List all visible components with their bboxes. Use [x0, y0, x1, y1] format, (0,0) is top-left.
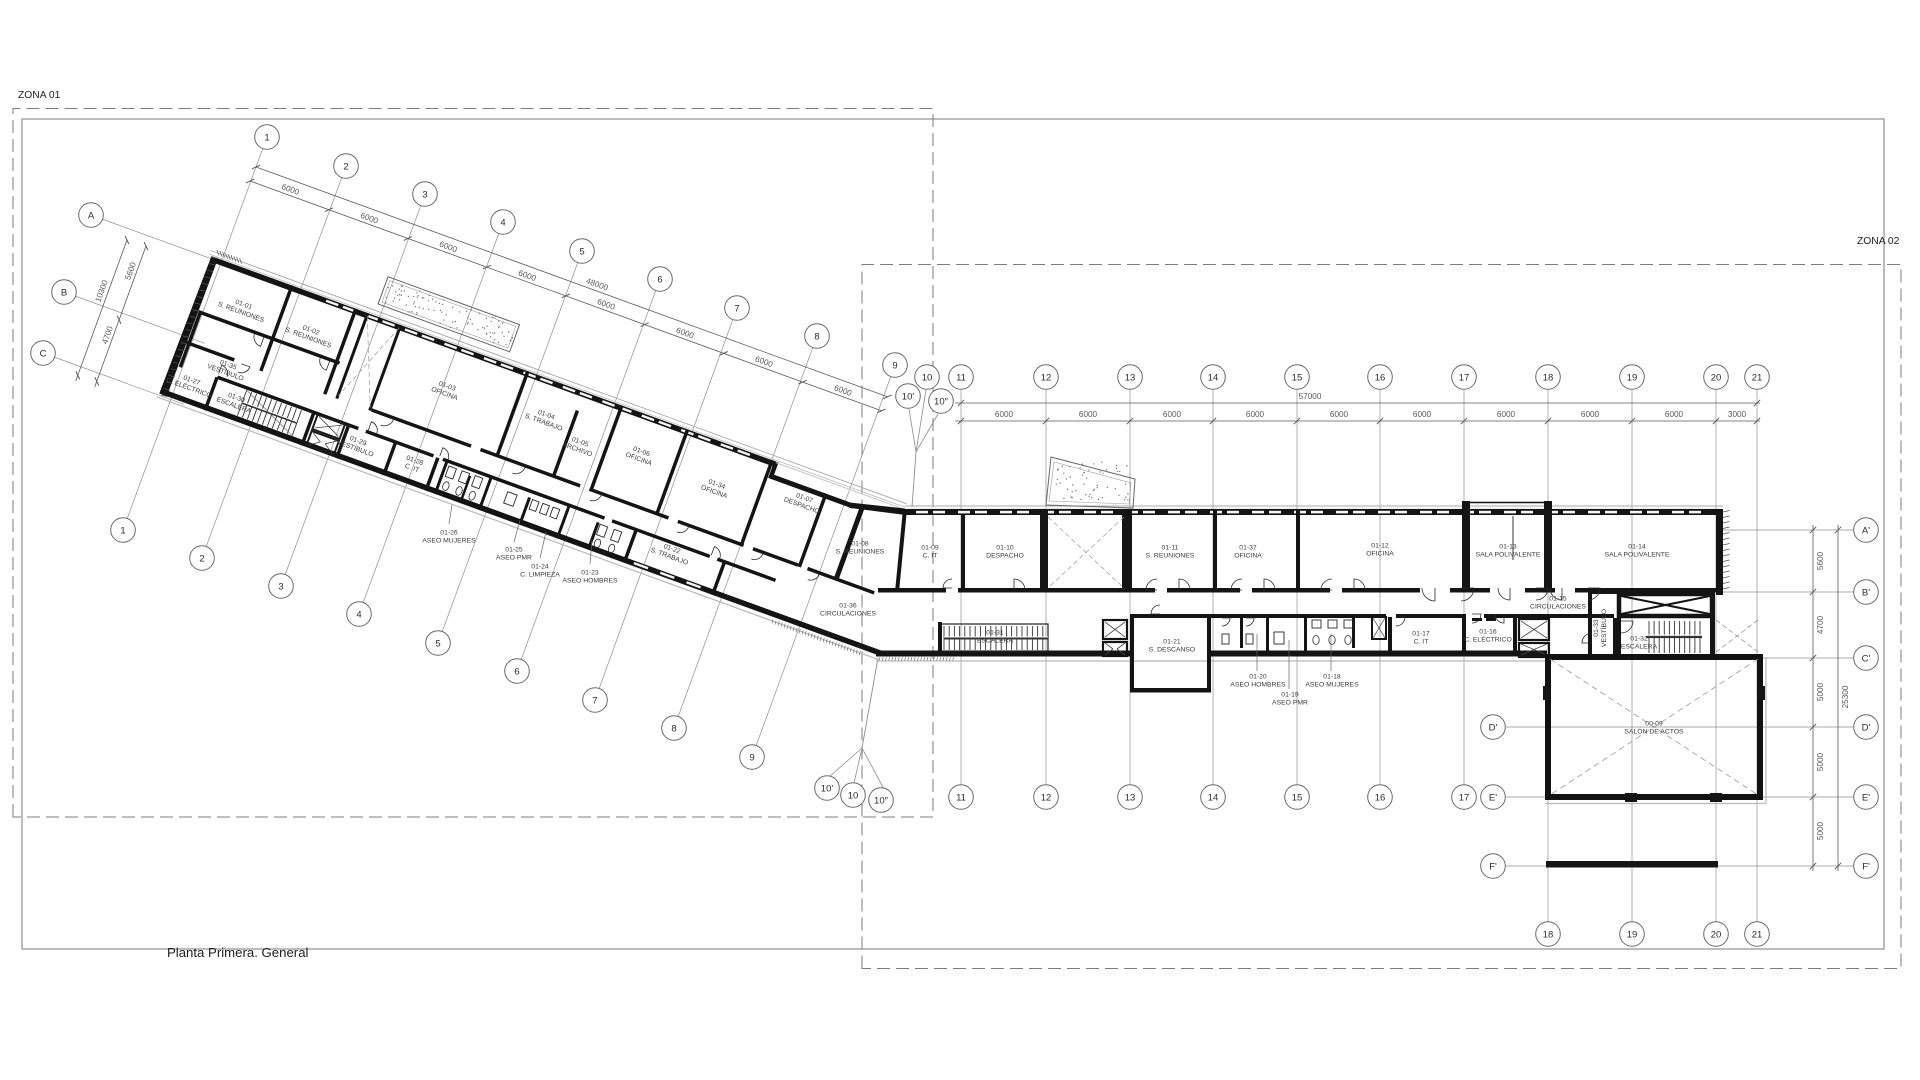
- svg-text:01-25: 01-25: [505, 547, 523, 554]
- svg-text:8: 8: [671, 723, 676, 734]
- svg-text:15: 15: [1292, 372, 1303, 383]
- svg-text:7: 7: [592, 695, 597, 706]
- svg-text:6000: 6000: [995, 410, 1014, 419]
- svg-text:ESCALERA: ESCALERA: [1621, 644, 1658, 651]
- svg-text:01-14: 01-14: [1628, 544, 1646, 551]
- svg-text:20: 20: [1711, 929, 1722, 940]
- svg-text:10: 10: [848, 790, 859, 801]
- svg-text:CIRCULACIONES: CIRCULACIONES: [820, 611, 876, 618]
- svg-text:7: 7: [734, 303, 739, 314]
- svg-text:5000: 5000: [1816, 682, 1825, 701]
- svg-text:2: 2: [199, 553, 204, 564]
- svg-text:01-23: 01-23: [581, 570, 599, 577]
- svg-text:18: 18: [1543, 372, 1554, 383]
- svg-text:9: 9: [749, 752, 754, 763]
- svg-text:SALÓN DE ACTOS: SALÓN DE ACTOS: [1624, 727, 1684, 736]
- svg-text:ZONA 02: ZONA 02: [1857, 236, 1900, 247]
- svg-text:20: 20: [1711, 372, 1722, 383]
- svg-text:00-09: 00-09: [1645, 721, 1663, 728]
- svg-text:E': E': [1489, 792, 1497, 803]
- svg-text:F': F': [1862, 861, 1870, 872]
- svg-text:C': C': [1862, 653, 1871, 664]
- svg-text:6000: 6000: [1163, 410, 1182, 419]
- svg-text:01-09: 01-09: [921, 545, 939, 552]
- svg-text:57000: 57000: [1299, 392, 1322, 401]
- svg-text:C. ELÉCTRICO: C. ELÉCTRICO: [1464, 635, 1512, 644]
- svg-text:10': 10': [821, 783, 834, 794]
- svg-text:3: 3: [278, 581, 283, 592]
- svg-text:ASEO HOMBRES: ASEO HOMBRES: [562, 578, 618, 585]
- svg-text:D': D': [1862, 722, 1871, 733]
- svg-text:B': B': [1862, 587, 1870, 598]
- svg-text:19: 19: [1627, 372, 1638, 383]
- svg-text:11: 11: [956, 372, 966, 383]
- svg-text:5600: 5600: [1816, 551, 1825, 570]
- svg-text:17: 17: [1459, 792, 1470, 803]
- svg-text:S. DESCANSO: S. DESCANSO: [1149, 647, 1195, 654]
- svg-text:ZONA 01: ZONA 01: [18, 90, 61, 101]
- svg-text:F': F': [1489, 861, 1497, 872]
- svg-text:14: 14: [1208, 372, 1219, 383]
- svg-text:16: 16: [1375, 372, 1386, 383]
- svg-text:B: B: [61, 287, 67, 298]
- svg-text:6000: 6000: [1079, 410, 1098, 419]
- svg-text:ASEO MUJERES: ASEO MUJERES: [1305, 682, 1359, 689]
- svg-text:6000: 6000: [1246, 410, 1265, 419]
- svg-text:SALA POLIVALENTE: SALA POLIVALENTE: [1605, 552, 1670, 559]
- svg-text:16: 16: [1375, 792, 1386, 803]
- svg-text:01-08: 01-08: [851, 541, 869, 548]
- svg-text:18: 18: [1543, 929, 1554, 940]
- svg-text:ESCALERA: ESCALERA: [977, 638, 1014, 645]
- svg-text:ASEO PMR: ASEO PMR: [496, 555, 532, 562]
- svg-text:13: 13: [1125, 372, 1136, 383]
- svg-text:SALA POLIVALENTE: SALA POLIVALENTE: [1476, 552, 1541, 559]
- svg-text:4: 4: [356, 609, 361, 620]
- svg-text:5: 5: [435, 638, 440, 649]
- svg-text:01-16: 01-16: [1479, 629, 1497, 636]
- svg-text:10″: 10″: [874, 795, 889, 806]
- svg-text:5000: 5000: [1816, 821, 1825, 840]
- svg-text:2: 2: [343, 161, 348, 172]
- svg-text:ASEO PMR: ASEO PMR: [1272, 700, 1308, 707]
- svg-text:01-18: 01-18: [1323, 674, 1341, 681]
- svg-text:C. IT: C. IT: [1414, 639, 1429, 646]
- svg-text:ASEO MUJERES: ASEO MUJERES: [422, 538, 476, 545]
- svg-text:6000: 6000: [1330, 410, 1349, 419]
- svg-text:VESTÍBULO: VESTÍBULO: [1599, 609, 1608, 647]
- svg-text:6000: 6000: [1497, 410, 1516, 419]
- svg-text:S. REUNIONES: S. REUNIONES: [1146, 553, 1195, 560]
- svg-text:01-20: 01-20: [1249, 674, 1267, 681]
- svg-text:11: 11: [956, 792, 966, 803]
- svg-text:01-37: 01-37: [1239, 545, 1257, 552]
- svg-text:3000: 3000: [1728, 410, 1747, 419]
- svg-text:ASEO HOMBRES: ASEO HOMBRES: [1230, 682, 1286, 689]
- svg-text:5: 5: [579, 246, 584, 257]
- svg-text:17: 17: [1459, 372, 1470, 383]
- svg-text:9: 9: [892, 360, 897, 371]
- svg-text:01-17: 01-17: [1412, 631, 1430, 638]
- svg-text:10″: 10″: [934, 396, 949, 407]
- svg-text:A: A: [88, 210, 95, 221]
- svg-text:01-15: 01-15: [1549, 596, 1567, 603]
- svg-text:8: 8: [814, 331, 819, 342]
- svg-text:S. REUNIONES: S. REUNIONES: [836, 549, 885, 556]
- svg-text:21: 21: [1752, 372, 1763, 383]
- svg-text:DESPACHO: DESPACHO: [986, 553, 1024, 560]
- svg-text:01-11: 01-11: [1162, 545, 1179, 552]
- svg-text:01-33: 01-33: [1593, 619, 1600, 637]
- svg-text:D': D': [1489, 722, 1498, 733]
- svg-text:01-13: 01-13: [1499, 544, 1517, 551]
- svg-text:A': A': [1862, 525, 1870, 536]
- svg-text:01-31: 01-31: [986, 630, 1004, 637]
- svg-text:25300: 25300: [1841, 685, 1850, 708]
- svg-text:12: 12: [1041, 372, 1052, 383]
- svg-text:E': E': [1862, 792, 1870, 803]
- svg-text:CIRCULACIONES: CIRCULACIONES: [1530, 604, 1586, 611]
- svg-text:10': 10': [902, 391, 915, 402]
- svg-text:01-21: 01-21: [1163, 639, 1181, 646]
- svg-text:19: 19: [1627, 929, 1638, 940]
- svg-text:4: 4: [500, 217, 505, 228]
- svg-text:01-26: 01-26: [440, 530, 458, 537]
- svg-text:01-36: 01-36: [839, 603, 857, 610]
- svg-text:15: 15: [1292, 792, 1303, 803]
- svg-text:5000: 5000: [1816, 752, 1825, 771]
- svg-text:10: 10: [922, 372, 933, 383]
- svg-text:21: 21: [1752, 929, 1763, 940]
- svg-text:OFICINA: OFICINA: [1366, 551, 1394, 558]
- svg-text:3: 3: [422, 189, 427, 200]
- svg-text:6: 6: [657, 274, 662, 285]
- svg-text:14: 14: [1208, 792, 1219, 803]
- svg-text:01-32: 01-32: [1630, 636, 1648, 643]
- svg-text:Planta Primera. General: Planta Primera. General: [167, 945, 309, 960]
- svg-text:6000: 6000: [1413, 410, 1432, 419]
- svg-text:6000: 6000: [1665, 410, 1684, 419]
- svg-text:1: 1: [264, 132, 269, 143]
- svg-text:OFICINA: OFICINA: [1234, 553, 1262, 560]
- svg-text:4700: 4700: [1816, 615, 1825, 634]
- svg-text:6: 6: [514, 666, 519, 677]
- svg-text:12: 12: [1041, 792, 1052, 803]
- svg-text:01-12: 01-12: [1371, 543, 1389, 550]
- svg-text:01-10: 01-10: [996, 545, 1014, 552]
- svg-text:6000: 6000: [1581, 410, 1600, 419]
- svg-text:01-24: 01-24: [531, 564, 549, 571]
- svg-text:C. LIMPIEZA: C. LIMPIEZA: [520, 572, 560, 579]
- svg-text:C. IT: C. IT: [923, 553, 938, 560]
- svg-text:1: 1: [120, 525, 125, 536]
- svg-text:01-19: 01-19: [1281, 692, 1299, 699]
- svg-text:C: C: [40, 348, 47, 359]
- svg-text:13: 13: [1125, 792, 1136, 803]
